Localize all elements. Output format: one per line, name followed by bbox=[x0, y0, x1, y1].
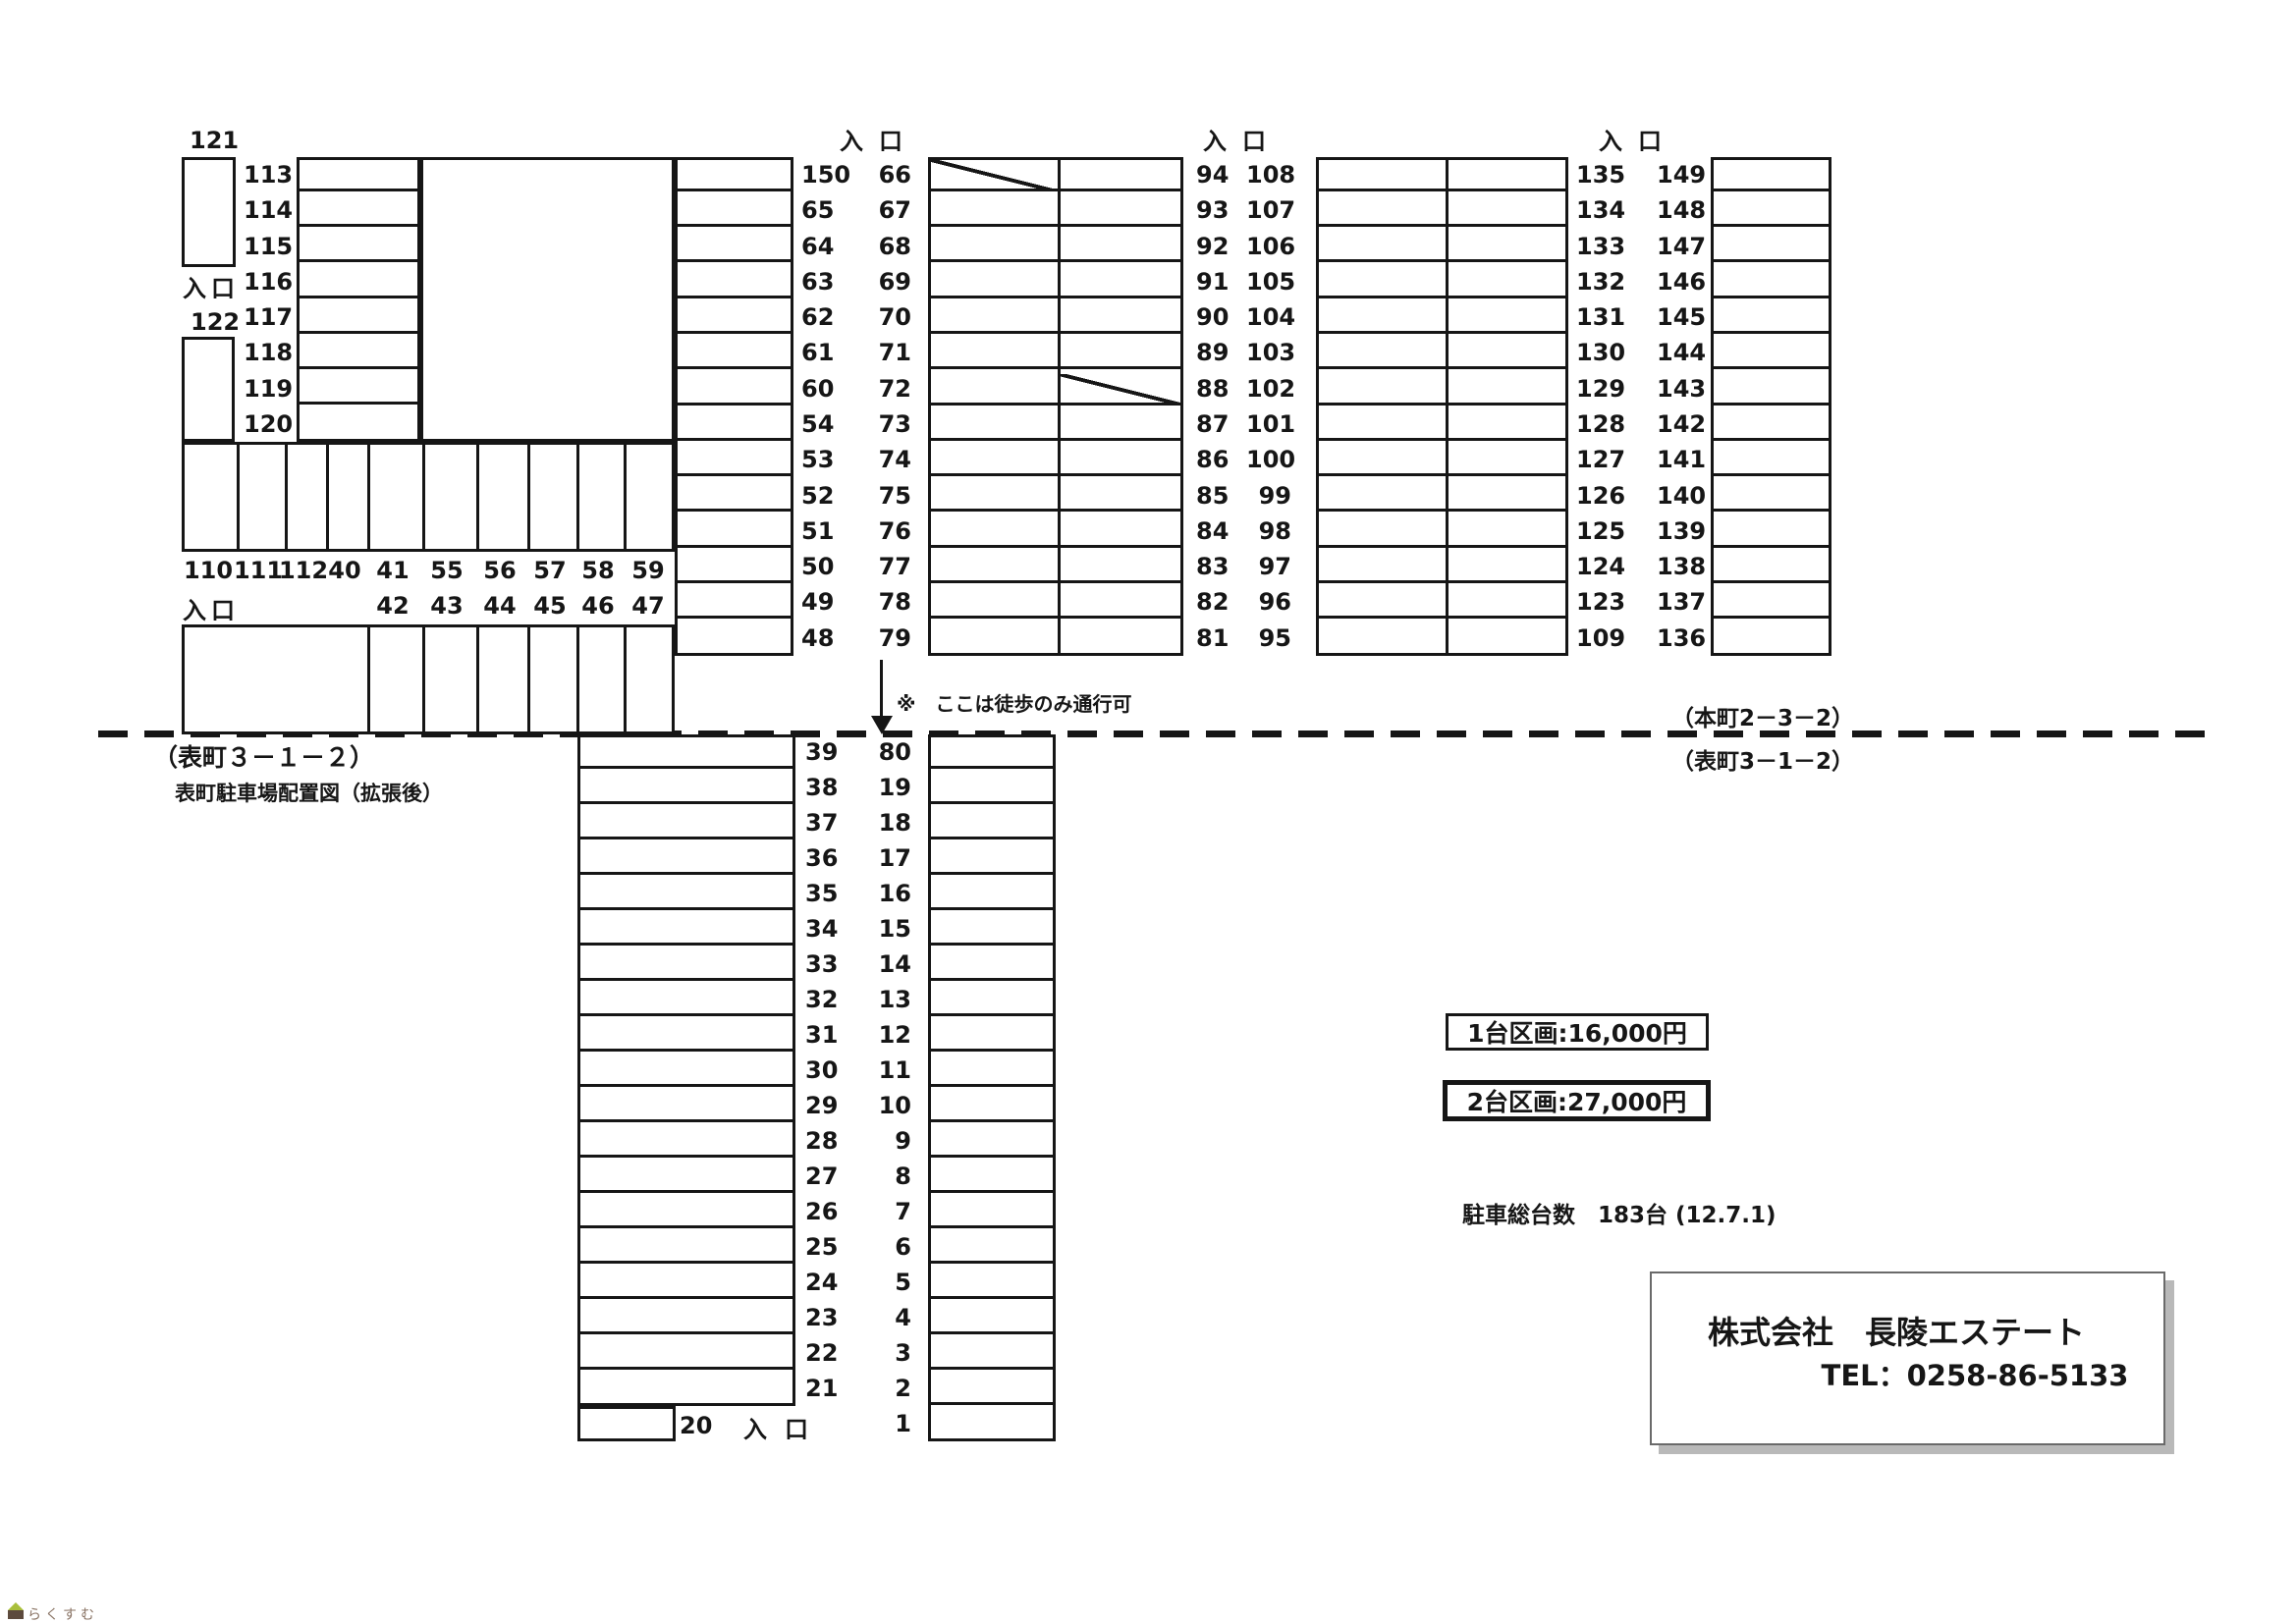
stall-divider bbox=[1319, 189, 1565, 191]
price-double-box: 2台区画:27,000円 bbox=[1443, 1080, 1711, 1121]
stall-label: 19 bbox=[868, 770, 911, 805]
stall-label: 61 bbox=[801, 335, 847, 370]
stall-label: 133 bbox=[1576, 229, 1621, 264]
stall-label: 131 bbox=[1576, 299, 1621, 335]
stall-label: 92 bbox=[1196, 229, 1239, 264]
stall-label: 94 bbox=[1196, 157, 1239, 192]
stall-label: 38 bbox=[805, 770, 848, 805]
stall-label: 115 bbox=[244, 229, 291, 264]
entrance-top-2-label: 入口 bbox=[1193, 122, 1291, 156]
stall-divider bbox=[1714, 473, 1829, 476]
stall-label: 144 bbox=[1657, 335, 1704, 370]
stall-label: 90 bbox=[1196, 299, 1239, 335]
stall-divider bbox=[476, 445, 479, 549]
stall-label: 118 bbox=[244, 335, 291, 370]
stall-divider bbox=[931, 1296, 1053, 1299]
stall-label: 9 bbox=[868, 1123, 911, 1159]
stall-121-label: 121 bbox=[190, 127, 239, 154]
logo-roof-shape bbox=[8, 1602, 24, 1610]
clinic-box bbox=[420, 157, 675, 442]
stall-label: 76 bbox=[868, 514, 911, 549]
stall-divider bbox=[1319, 473, 1565, 476]
address-lower-left: （表町３－１－２） bbox=[153, 738, 374, 774]
stall-label: 73 bbox=[868, 406, 911, 442]
entrance-bottom-label: 入口 bbox=[743, 1410, 826, 1444]
stall-label: 127 bbox=[1576, 442, 1621, 477]
stall-label: 74 bbox=[868, 442, 911, 477]
stall-label: 148 bbox=[1657, 192, 1704, 228]
stall-label: 71 bbox=[868, 335, 911, 370]
stall-divider bbox=[1714, 509, 1829, 512]
stall-divider bbox=[367, 445, 370, 549]
stall-divider bbox=[580, 1049, 793, 1052]
address-lower-right: （表町3－1－2） bbox=[1611, 742, 1854, 776]
stall-divider bbox=[527, 445, 530, 549]
price-double-text: 2台区画:27,000円 bbox=[1467, 1083, 1687, 1118]
stall-divider bbox=[1714, 296, 1829, 298]
stall-label: 130 bbox=[1576, 335, 1621, 370]
stall-divider bbox=[580, 1119, 793, 1122]
stall-label: 75 bbox=[868, 478, 911, 514]
stall-label: 103 bbox=[1246, 335, 1291, 370]
stall-divider bbox=[931, 259, 1180, 262]
stall-divider bbox=[678, 296, 791, 298]
stall-label: 120 bbox=[244, 406, 291, 442]
pedestrian-arrow-stem bbox=[880, 660, 883, 719]
stall-divider bbox=[580, 1225, 793, 1228]
stall-label: 140 bbox=[1657, 478, 1704, 514]
stall-label: 23 bbox=[805, 1300, 848, 1335]
stall-88-diagonal bbox=[1059, 374, 1180, 405]
stall-divider bbox=[678, 509, 791, 512]
stall-divider bbox=[1319, 545, 1565, 548]
stall-121-box bbox=[182, 157, 236, 267]
stall-divider bbox=[580, 1084, 793, 1087]
stall-divider bbox=[580, 978, 793, 981]
stall-label: 32 bbox=[805, 982, 848, 1017]
stall-label: 10 bbox=[868, 1088, 911, 1123]
stall-divider bbox=[1714, 403, 1829, 406]
stall-122-box bbox=[182, 337, 235, 442]
stall-divider bbox=[300, 224, 417, 227]
stall-divider bbox=[576, 627, 579, 731]
stall-divider bbox=[678, 438, 791, 441]
stall-label: 21 bbox=[805, 1371, 848, 1406]
stall-divider bbox=[931, 1331, 1053, 1334]
stall-divider bbox=[931, 1261, 1053, 1264]
stall-divider bbox=[1319, 509, 1565, 512]
stall-divider bbox=[931, 1155, 1053, 1158]
stall-label: 68 bbox=[868, 229, 911, 264]
stall-label: 150 bbox=[801, 157, 847, 192]
price-single-text: 1台区画:16,000円 bbox=[1467, 1014, 1687, 1050]
stall-label: 47 bbox=[617, 591, 680, 621]
stall-label: 69 bbox=[868, 264, 911, 299]
stall-divider bbox=[576, 445, 579, 549]
stall-label: 101 bbox=[1246, 406, 1291, 442]
stall-label: 66 bbox=[868, 157, 911, 192]
stall-divider bbox=[931, 872, 1053, 875]
stall-divider bbox=[931, 473, 1180, 476]
site-logo-icon bbox=[8, 1602, 24, 1619]
stall-label: 30 bbox=[805, 1053, 848, 1088]
stall-label: 12 bbox=[868, 1017, 911, 1053]
lower-band-stalls bbox=[182, 624, 675, 734]
bottom-right-stalls bbox=[928, 734, 1056, 1441]
stall-label: 22 bbox=[805, 1335, 848, 1371]
stall-divider bbox=[580, 872, 793, 875]
stall-divider bbox=[476, 627, 479, 731]
stall-label: 142 bbox=[1657, 406, 1704, 442]
stall-label: 81 bbox=[1196, 621, 1239, 656]
stall-label: 134 bbox=[1576, 192, 1621, 228]
upper-band-numbers: 11011111240415556575859 bbox=[0, 556, 2296, 585]
stall-label: 25 bbox=[805, 1229, 848, 1265]
stall-label: 14 bbox=[868, 947, 911, 982]
stall-label: 126 bbox=[1576, 478, 1621, 514]
stall-label: 113 bbox=[244, 157, 291, 192]
stall-label: 85 bbox=[1196, 478, 1239, 514]
stall-divider bbox=[931, 1119, 1053, 1122]
stall-divider bbox=[580, 1261, 793, 1264]
stall-divider bbox=[931, 801, 1053, 804]
stall-label: 106 bbox=[1246, 229, 1291, 264]
stall-divider bbox=[931, 438, 1180, 441]
stall-label: 84 bbox=[1196, 514, 1239, 549]
stall-label: 51 bbox=[801, 514, 847, 549]
stall-label: 6 bbox=[868, 1229, 911, 1265]
stall-label: 27 bbox=[805, 1159, 848, 1194]
stall-divider bbox=[678, 189, 791, 191]
stall-divider bbox=[1714, 224, 1829, 227]
stall-20-box bbox=[577, 1406, 676, 1441]
stall-label: 125 bbox=[1576, 514, 1621, 549]
stall-divider bbox=[931, 1367, 1053, 1370]
stall-divider bbox=[678, 224, 791, 227]
stall-label: 7 bbox=[868, 1194, 911, 1229]
stall-divider bbox=[326, 445, 329, 549]
stall-divider bbox=[367, 627, 370, 731]
stall-divider bbox=[580, 766, 793, 769]
stall-label: 33 bbox=[805, 947, 848, 982]
stall-label: 80 bbox=[868, 734, 911, 770]
stall-20-label: 20 bbox=[680, 1412, 712, 1439]
stall-label: 91 bbox=[1196, 264, 1239, 299]
stall-divider bbox=[624, 627, 627, 731]
stall-label: 72 bbox=[868, 371, 911, 406]
stall-divider bbox=[931, 907, 1053, 910]
entrance-top-left-label: 入口 bbox=[183, 269, 240, 303]
stall-divider bbox=[678, 473, 791, 476]
stall-label: 87 bbox=[1196, 406, 1239, 442]
company-tel: TEL：0258-86-5133 bbox=[1803, 1353, 2147, 1394]
stall-label: 52 bbox=[801, 478, 847, 514]
stall-label: 65 bbox=[801, 192, 847, 228]
stall-label: 141 bbox=[1657, 442, 1704, 477]
stall-divider bbox=[931, 296, 1180, 298]
stall-label: 60 bbox=[801, 371, 847, 406]
logo-house-shape bbox=[8, 1610, 24, 1619]
stall-label: 1 bbox=[868, 1406, 911, 1441]
stall-divider bbox=[931, 224, 1180, 227]
entrance-top-1-label: 入口 bbox=[830, 122, 928, 156]
stall-divider bbox=[931, 509, 1180, 512]
stall-label: 149 bbox=[1657, 157, 1704, 192]
stall-label: 67 bbox=[868, 192, 911, 228]
stall-divider bbox=[1714, 259, 1829, 262]
stall-label: 63 bbox=[801, 264, 847, 299]
stall-divider bbox=[1319, 403, 1565, 406]
stall-label: 28 bbox=[805, 1123, 848, 1159]
stall-label: 17 bbox=[868, 840, 911, 876]
stall-divider bbox=[1714, 366, 1829, 369]
stall-divider bbox=[931, 1190, 1053, 1193]
stall-label: 36 bbox=[805, 840, 848, 876]
stall-label: 108 bbox=[1246, 157, 1291, 192]
stall-divider bbox=[931, 1013, 1053, 1016]
stall-divider bbox=[931, 331, 1180, 334]
stall-divider bbox=[678, 259, 791, 262]
stall-divider bbox=[931, 1402, 1053, 1405]
upper-band-stalls bbox=[182, 442, 675, 552]
stall-divider bbox=[580, 1367, 793, 1370]
stall-divider bbox=[1319, 259, 1565, 262]
stall-label: 70 bbox=[868, 299, 911, 335]
stall-divider bbox=[931, 545, 1180, 548]
stall-divider bbox=[580, 1155, 793, 1158]
stall-divider bbox=[678, 545, 791, 548]
stall-divider bbox=[422, 445, 425, 549]
total-count-text: 駐車総台数 183台 (12.7.1) bbox=[1462, 1196, 1777, 1229]
stall-label: 89 bbox=[1196, 335, 1239, 370]
stall-label: 3 bbox=[868, 1335, 911, 1371]
stall-divider bbox=[931, 1084, 1053, 1087]
stall-divider bbox=[580, 943, 793, 946]
stall-label: 114 bbox=[244, 192, 291, 228]
stall-label: 107 bbox=[1246, 192, 1291, 228]
stall-label: 16 bbox=[868, 876, 911, 911]
stall-label: 53 bbox=[801, 442, 847, 477]
stall-divider bbox=[1319, 438, 1565, 441]
lower-band-numbers: 424344454647 bbox=[0, 591, 2296, 621]
price-single-box: 1台区画:16,000円 bbox=[1446, 1013, 1709, 1051]
stall-divider bbox=[580, 1296, 793, 1299]
stall-divider bbox=[624, 445, 627, 549]
stall-label: 88 bbox=[1196, 371, 1239, 406]
stall-label: 34 bbox=[805, 911, 848, 947]
stall-divider bbox=[300, 259, 417, 262]
parking-map-page: 121 入口 122 鞍立歯科医院 入口 入口 入口 入口 表町派出所跡、 （本… bbox=[0, 0, 2296, 1623]
stall-label: 64 bbox=[801, 229, 847, 264]
stall-label: 135 bbox=[1576, 157, 1621, 192]
stall-divider bbox=[527, 627, 530, 731]
stall-divider bbox=[300, 366, 417, 369]
stall-label: 79 bbox=[868, 621, 911, 656]
stall-divider bbox=[580, 1013, 793, 1016]
address-upper-right: （本町2－3－2） bbox=[1611, 699, 1854, 732]
stall-divider bbox=[580, 907, 793, 910]
stall-divider bbox=[1319, 224, 1565, 227]
stall-divider bbox=[300, 189, 417, 191]
stall-divider bbox=[1714, 189, 1829, 191]
stall-divider bbox=[678, 366, 791, 369]
stall-divider bbox=[580, 1331, 793, 1334]
stall-label: 48 bbox=[801, 621, 847, 656]
stall-label: 24 bbox=[805, 1265, 848, 1300]
stall-label: 116 bbox=[244, 264, 291, 299]
stall-label: 2 bbox=[868, 1371, 911, 1406]
stall-divider bbox=[931, 1049, 1053, 1052]
stall-label: 54 bbox=[801, 406, 847, 442]
stall-label: 86 bbox=[1196, 442, 1239, 477]
stall-divider bbox=[237, 445, 240, 549]
stall-divider bbox=[931, 943, 1053, 946]
stall-label: 13 bbox=[868, 982, 911, 1017]
stall-label: 104 bbox=[1246, 299, 1291, 335]
stall-label: 62 bbox=[801, 299, 847, 335]
stall-divider bbox=[931, 1225, 1053, 1228]
stall-label: 100 bbox=[1246, 442, 1291, 477]
stall-divider bbox=[300, 296, 417, 298]
stall-label: 95 bbox=[1246, 621, 1291, 656]
stall-divider bbox=[678, 403, 791, 406]
walk-only-note: ※ ここは徒歩のみ通行可 bbox=[897, 688, 1131, 717]
stall-divider bbox=[931, 837, 1053, 839]
company-name: 株式会社 長陵エステート bbox=[1680, 1308, 2112, 1353]
stall-divider bbox=[580, 837, 793, 839]
stall-divider bbox=[1714, 438, 1829, 441]
stall-divider bbox=[422, 627, 425, 731]
stall-label: 37 bbox=[805, 805, 848, 840]
stall-label: 59 bbox=[617, 556, 680, 585]
stall-label: 109 bbox=[1576, 621, 1621, 656]
stall-label: 102 bbox=[1246, 371, 1291, 406]
stall-label: 35 bbox=[805, 876, 848, 911]
stall-label: 99 bbox=[1246, 478, 1291, 514]
left-stall-rows bbox=[297, 157, 420, 442]
stall-divider bbox=[285, 445, 288, 549]
map-title: 表町駐車場配置図（拡張後） bbox=[175, 778, 443, 807]
stall-label: 29 bbox=[805, 1088, 848, 1123]
stall-divider bbox=[1319, 296, 1565, 298]
stall-label: 105 bbox=[1246, 264, 1291, 299]
stall-divider bbox=[300, 402, 417, 405]
stall-label: 119 bbox=[244, 371, 291, 406]
stall-label: 129 bbox=[1576, 371, 1621, 406]
stall-divider bbox=[931, 978, 1053, 981]
stall-label: 31 bbox=[805, 1017, 848, 1053]
stall-label: 136 bbox=[1657, 621, 1704, 656]
stall-label: 139 bbox=[1657, 514, 1704, 549]
bottom-left-stalls bbox=[577, 734, 795, 1406]
stall-label: 145 bbox=[1657, 299, 1704, 335]
stall-divider bbox=[1319, 366, 1565, 369]
stall-label: 117 bbox=[244, 299, 291, 335]
stall-label: 146 bbox=[1657, 264, 1704, 299]
entrance-top-3-label: 入口 bbox=[1589, 122, 1687, 156]
stall-label: 5 bbox=[868, 1265, 911, 1300]
stall-label: 26 bbox=[805, 1194, 848, 1229]
stall-divider bbox=[580, 1190, 793, 1193]
stall-divider bbox=[1319, 331, 1565, 334]
stall-label: 143 bbox=[1657, 371, 1704, 406]
site-logo-text: らくすむ bbox=[27, 1604, 98, 1623]
stall-label: 18 bbox=[868, 805, 911, 840]
stall-label: 39 bbox=[805, 734, 848, 770]
stall-divider bbox=[1714, 331, 1829, 334]
stall-divider bbox=[1714, 545, 1829, 548]
stall-divider bbox=[931, 366, 1180, 369]
stall-label: 128 bbox=[1576, 406, 1621, 442]
stall-66-diagonal bbox=[931, 160, 1053, 190]
stall-label: 132 bbox=[1576, 264, 1621, 299]
stall-divider bbox=[678, 331, 791, 334]
stall-divider bbox=[931, 766, 1053, 769]
stall-label: 8 bbox=[868, 1159, 911, 1194]
stall-label: 147 bbox=[1657, 229, 1704, 264]
stall-divider bbox=[300, 331, 417, 334]
stall-divider bbox=[580, 801, 793, 804]
stall-label: 93 bbox=[1196, 192, 1239, 228]
stall-label: 15 bbox=[868, 911, 911, 947]
stall-122-label: 122 bbox=[191, 308, 240, 336]
stall-label: 98 bbox=[1246, 514, 1291, 549]
stall-label: 11 bbox=[868, 1053, 911, 1088]
stall-label: 4 bbox=[868, 1300, 911, 1335]
